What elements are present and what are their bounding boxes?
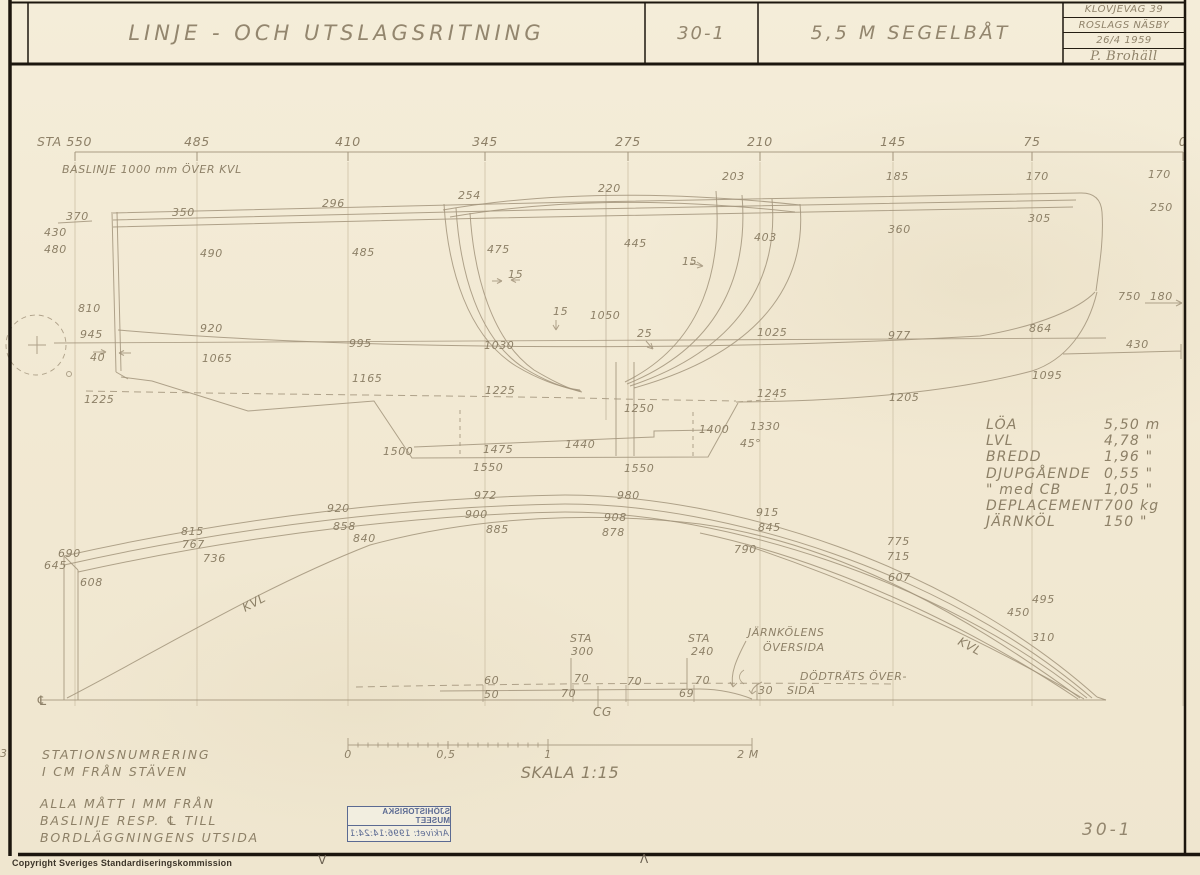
- station-label: 345: [472, 134, 498, 149]
- dimension-label: DÖDTRÄTS ÖVER-: [800, 670, 907, 683]
- museum-stamp: SJÖHISTORISKA MUSEET Arkivet: 1996:14:24…: [347, 806, 451, 842]
- dimension-label: 995: [349, 337, 372, 350]
- registration-mark-left: V: [318, 853, 326, 867]
- title-info-box: KLÖVJEVÄG 39ROSLAGS NÄSBY26/4 1959P. Bro…: [1063, 2, 1185, 64]
- dimension-label: 1475: [483, 443, 513, 456]
- dimension-label: STA: [570, 632, 592, 645]
- dimension-label: 878: [602, 526, 625, 539]
- dimension-label: 790: [734, 543, 757, 556]
- dimension-label: 1205: [889, 391, 919, 404]
- dimension-label: 254: [458, 189, 481, 202]
- dimension-label: 370: [66, 210, 89, 223]
- spec-value: 1,05 ": [1104, 482, 1153, 498]
- dimension-label: 430: [44, 226, 67, 239]
- dimension-label: 60: [484, 674, 499, 687]
- station-label: 210: [747, 134, 773, 149]
- dimension-label: 736: [203, 552, 226, 565]
- note-line: ALLA MÅTT I MM FRÅN: [40, 795, 259, 812]
- spec-label: BREDD: [986, 449, 1104, 465]
- dimension-label: 403: [754, 231, 777, 244]
- dimension-label: 360: [888, 223, 911, 236]
- dimension-label: 1025: [757, 326, 787, 339]
- spec-label: LVL: [986, 433, 1104, 449]
- dimension-label: 1440: [565, 438, 595, 451]
- spec-row: " med CB1,05 ": [986, 482, 1186, 498]
- station-label: 75: [1023, 134, 1040, 149]
- dimension-label: 15: [553, 305, 568, 318]
- dimension-label: 70: [561, 687, 576, 700]
- stamp-museum-name: SJÖHISTORISKA MUSEET: [348, 807, 450, 826]
- registration-mark-right: Λ: [640, 852, 648, 866]
- dimension-label: 885: [486, 523, 509, 536]
- dimension-label: 864: [1029, 322, 1052, 335]
- dimension-label: 475: [487, 243, 510, 256]
- drawing-subtitle: 5,5 M SEGELBÅT: [811, 22, 1011, 44]
- dimension-label: 305: [1028, 212, 1051, 225]
- dimension-label: KVL: [956, 634, 984, 658]
- dimension-label: 495: [1032, 593, 1055, 606]
- dimension-label: CG: [593, 705, 612, 719]
- station-label: STA 550: [37, 134, 92, 149]
- spec-row: DJUPGÅENDE0,55 ": [986, 466, 1186, 482]
- dimension-label: 1165: [352, 372, 382, 385]
- dimension-label: 1500: [383, 445, 413, 458]
- dimension-label: 840: [353, 532, 376, 545]
- spec-value: 700 kg: [1104, 498, 1159, 514]
- spec-value: 4,78 ": [1104, 433, 1153, 449]
- dimension-label: KVL: [240, 591, 268, 615]
- dimension-label: 185: [886, 170, 909, 183]
- spec-label: DEPLACEMENT: [986, 498, 1104, 514]
- note-line: BASLINJE RESP. ℄ TILL: [40, 812, 259, 829]
- dimension-label: ÖVERSIDA: [763, 641, 825, 654]
- dimension-label: 908: [604, 511, 627, 524]
- dimension-label: 203: [722, 170, 745, 183]
- station-labels: STA 550485410345275210145750BASLINJE 100…: [37, 134, 1187, 176]
- drawing-number-cell: 30-1: [645, 2, 758, 64]
- dimension-label: 1330: [750, 420, 780, 433]
- dimension-label: 920: [200, 322, 223, 335]
- drawing-title: LINJE - OCH UTSLAGSRITNING: [128, 21, 544, 45]
- dimension-label: 480: [44, 243, 67, 256]
- title-info-row-3: P. Brohäll: [1063, 48, 1185, 64]
- subtitle-cell: 5,5 M SEGELBÅT: [758, 2, 1063, 64]
- dimension-label: 180: [1150, 290, 1173, 303]
- dimension-label: 250: [1150, 201, 1173, 214]
- dimension-label: 69: [679, 687, 694, 700]
- scale-tick-label: 1: [544, 748, 552, 761]
- dimension-label: 450: [1007, 606, 1030, 619]
- dimension-label: 900: [465, 508, 488, 521]
- dimension-label: 775: [887, 535, 910, 548]
- dimension-label: 300: [571, 645, 594, 658]
- dimension-label: 240: [691, 645, 714, 658]
- title-info-row-2: 26/4 1959: [1063, 32, 1185, 48]
- dimension-label: 607: [888, 571, 911, 584]
- dimension-label: 490: [200, 247, 223, 260]
- dimension-label: 1250: [624, 402, 654, 415]
- margin-mark: 3: [0, 747, 7, 760]
- sheet-number: 30-1: [1082, 820, 1133, 840]
- dimension-label: 430: [1126, 338, 1149, 351]
- dimension-label: SIDA: [787, 684, 816, 697]
- scale-caption: SKALA 1:15: [521, 763, 619, 782]
- dimension-label: 310: [1032, 631, 1055, 644]
- dimension-label: 50: [484, 688, 499, 701]
- station-numbering-note: STATIONSNUMRERINGI CM FRÅN STÄVEN: [42, 746, 210, 780]
- dimension-label: 1400: [699, 423, 729, 436]
- dimension-label: 980: [617, 489, 640, 502]
- spec-row: DEPLACEMENT700 kg: [986, 498, 1186, 514]
- dimension-label: 296: [322, 197, 345, 210]
- dimension-label: 945: [80, 328, 103, 341]
- note-line: STATIONSNUMRERING: [42, 746, 210, 763]
- dimension-label: JÄRNKÖLENS: [746, 626, 825, 639]
- spec-row: BREDD1,96 ": [986, 449, 1186, 465]
- spec-row: LVL4,78 ": [986, 433, 1186, 449]
- station-label: 485: [184, 134, 210, 149]
- dimension-label: 220: [598, 182, 621, 195]
- scanned-lines-drawing-sheet: 2031851701702503603052963503704304804904…: [0, 0, 1200, 875]
- dimension-label: 1225: [485, 384, 515, 397]
- spec-label: JÄRNKÖL: [986, 514, 1104, 530]
- title-info-row-0: KLÖVJEVÄG 39: [1063, 2, 1185, 17]
- spec-label: DJUPGÅENDE: [986, 466, 1104, 482]
- measurement-note: ALLA MÅTT I MM FRÅNBASLINJE RESP. ℄ TILL…: [40, 795, 259, 846]
- dimension-label: 715: [887, 550, 910, 563]
- dimension-label: 1030: [484, 339, 514, 352]
- dimension-label: 350: [172, 206, 195, 219]
- dimension-label: 1550: [473, 461, 503, 474]
- dimension-label: 15: [508, 268, 523, 281]
- dimension-label: 1225: [84, 393, 114, 406]
- title-cell: LINJE - OCH UTSLAGSRITNING: [28, 2, 645, 64]
- scale-tick-label: 2 M: [737, 748, 759, 761]
- dimension-label: 170: [1148, 168, 1171, 181]
- dimension-label: 445: [624, 237, 647, 250]
- dimension-label: 1050: [590, 309, 620, 322]
- dimension-label: 1550: [624, 462, 654, 475]
- station-label: 145: [880, 134, 906, 149]
- dimension-label: 645: [44, 559, 67, 572]
- spec-label: LÖA: [986, 417, 1104, 433]
- spec-value: 0,55 ": [1104, 466, 1153, 482]
- dimension-label: 810: [78, 302, 101, 315]
- dimension-label: 767: [182, 538, 205, 551]
- dimension-label: 170: [1026, 170, 1049, 183]
- spec-label: " med CB: [986, 482, 1104, 498]
- dimension-label: 40: [90, 351, 105, 364]
- scale-tick-label: 0,5: [436, 748, 455, 761]
- spec-value: 150 ": [1104, 514, 1148, 530]
- dimension-label: 972: [474, 489, 497, 502]
- dimension-label: 70: [695, 674, 710, 687]
- dimension-label: 1245: [757, 387, 787, 400]
- dimension-label: 1095: [1032, 369, 1062, 382]
- spec-row: JÄRNKÖL150 ": [986, 514, 1186, 530]
- dimension-label: 45°: [740, 437, 761, 450]
- station-label: 275: [615, 134, 641, 149]
- dimension-label: 750: [1118, 290, 1141, 303]
- dimension-label: 15: [682, 255, 697, 268]
- dimension-label: 485: [352, 246, 375, 259]
- spec-value: 1,96 ": [1104, 449, 1153, 465]
- stamp-archive-number: Arkivet: 1996:14:24:1: [348, 826, 450, 841]
- dimension-label: 845: [758, 521, 781, 534]
- dimension-label: STA: [688, 632, 710, 645]
- baseline-note: BASLINJE 1000 mm ÖVER KVL: [62, 163, 242, 176]
- dimension-label: 30: [758, 684, 773, 697]
- dimension-label: 815: [181, 525, 204, 538]
- dimension-label: 977: [888, 329, 911, 342]
- spec-row: LÖA5,50 m: [986, 417, 1186, 433]
- note-line: BORDLÄGGNINGENS UTSIDA: [40, 829, 259, 846]
- copyright-text: Copyright Sveriges Standardiseringskommi…: [12, 858, 232, 868]
- dimension-label: 915: [756, 506, 779, 519]
- scale-bar-labels: 00,512 MSKALA 1:15: [344, 748, 759, 782]
- dimension-label: 70: [627, 675, 642, 688]
- station-label: 410: [335, 134, 361, 149]
- scale-tick-label: 0: [344, 748, 352, 761]
- dimension-label: 25: [637, 327, 652, 340]
- dimension-label: ℄: [36, 694, 48, 709]
- dimension-label: 1065: [202, 352, 232, 365]
- dimension-label: 608: [80, 576, 103, 589]
- drawing-number: 30-1: [677, 23, 726, 44]
- spec-value: 5,50 m: [1104, 417, 1160, 433]
- dimension-label: 70: [574, 672, 589, 685]
- note-line: I CM FRÅN STÄVEN: [42, 763, 210, 780]
- principal-dimensions-table: LÖA5,50 mLVL4,78 "BREDD1,96 "DJUPGÅENDE0…: [986, 417, 1186, 530]
- title-info-row-1: ROSLAGS NÄSBY: [1063, 17, 1185, 33]
- dimension-label: 920: [327, 502, 350, 515]
